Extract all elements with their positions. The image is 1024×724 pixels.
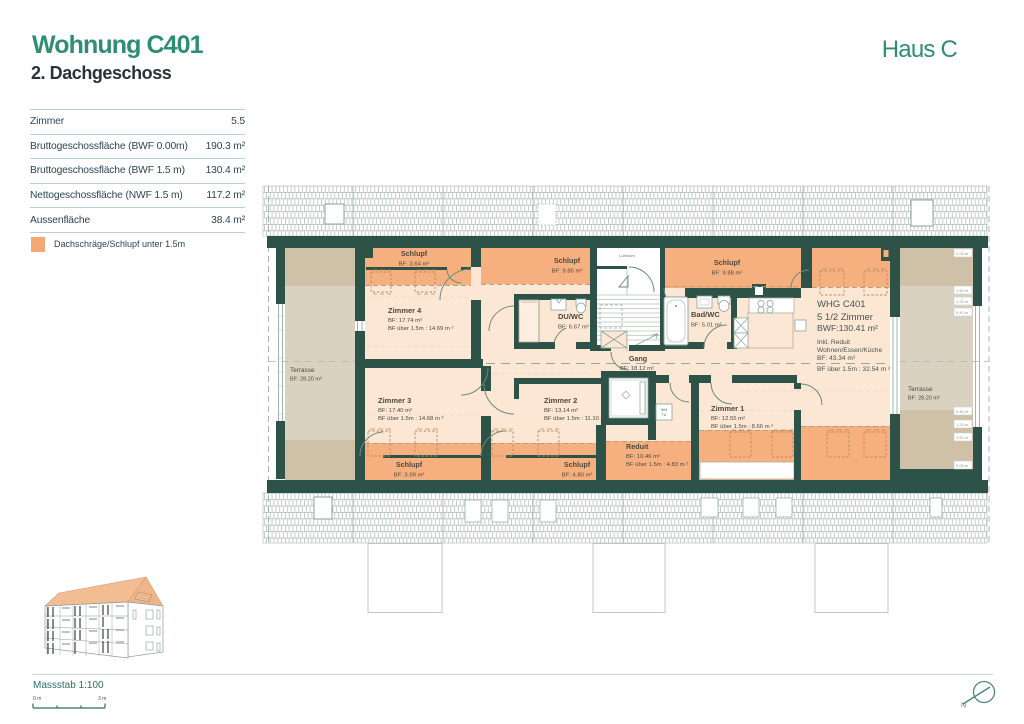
svg-text:BF über 1.5m : 4.83 m ²: BF über 1.5m : 4.83 m ² [626, 462, 688, 468]
svg-text:BF über 1.5m : 14.68 m ²: BF über 1.5m : 14.68 m ² [378, 416, 444, 422]
svg-text:BF: 6.67 m²: BF: 6.67 m² [558, 325, 589, 331]
svg-text:Zimmer 1: Zimmer 1 [711, 404, 744, 413]
svg-text:BF: 12.55 m²: BF: 12.55 m² [711, 416, 745, 422]
svg-text:1.20 m: 1.20 m [956, 422, 969, 427]
svg-text:BF über 1.5m : 32.54 m ²: BF über 1.5m : 32.54 m ² [817, 366, 891, 373]
svg-text:Reduit: Reduit [626, 442, 649, 451]
svg-text:Inkl. Reduit: Inkl. Reduit [817, 339, 850, 346]
svg-text:WM: WM [661, 408, 667, 412]
svg-text:Luftraum: Luftraum [619, 253, 635, 258]
svg-text:BF über 1.5m : 14.69 m ²: BF über 1.5m : 14.69 m ² [388, 326, 454, 332]
svg-text:Zimmer 2: Zimmer 2 [544, 396, 577, 405]
svg-text:2.00 m: 2.00 m [956, 251, 969, 256]
svg-text:Bad/WC: Bad/WC [691, 310, 720, 319]
svg-text:1.50 m: 1.50 m [956, 288, 969, 293]
svg-text:Schlupf: Schlupf [714, 258, 741, 267]
svg-text:5 1/2 Zimmer: 5 1/2 Zimmer [817, 312, 873, 323]
svg-text:N: N [961, 703, 966, 710]
svg-text:BF: 9.85 m²: BF: 9.85 m² [552, 269, 583, 275]
svg-text:BF: 28.20 m²: BF: 28.20 m² [290, 377, 322, 383]
svg-text:BF: 3.64 m²: BF: 3.64 m² [399, 262, 430, 268]
svg-text:BF: 10.46 m²: BF: 10.46 m² [626, 454, 660, 460]
svg-text:0.40 m: 0.40 m [956, 409, 969, 414]
svg-text:Terrasse: Terrasse [908, 386, 933, 393]
svg-text:Schlupf: Schlupf [554, 256, 581, 265]
svg-text:BF: 17.40 m²: BF: 17.40 m² [378, 408, 412, 414]
svg-text:Schlupf: Schlupf [564, 460, 591, 469]
svg-text:BF über 1.5m : 8.66 m ²: BF über 1.5m : 8.66 m ² [711, 424, 773, 430]
svg-text:Schlupf: Schlupf [396, 460, 423, 469]
svg-text:BF: 4.80 m²: BF: 4.80 m² [562, 473, 593, 479]
svg-text:BF: 17.74 m²: BF: 17.74 m² [388, 318, 422, 324]
svg-text:BF über 1.5m : 11.10 m ²: BF über 1.5m : 11.10 m ² [544, 416, 609, 422]
svg-text:Schlupf: Schlupf [401, 249, 428, 258]
svg-text:Wohnen/Essen/Küche: Wohnen/Essen/Küche [817, 347, 882, 354]
svg-text:BF: 3.99 m²: BF: 3.99 m² [394, 473, 425, 479]
svg-text:BF: 13.14 m²: BF: 13.14 m² [544, 408, 578, 414]
svg-text:BF: 5.01 m²: BF: 5.01 m² [691, 323, 722, 329]
svg-text:BF: 9.88 m²: BF: 9.88 m² [712, 271, 743, 277]
svg-text:BF: 28.20 m²: BF: 28.20 m² [908, 396, 940, 402]
svg-text:Zimmer 4: Zimmer 4 [388, 306, 422, 315]
svg-text:Gang: Gang [629, 354, 647, 363]
svg-text:TU: TU [662, 413, 667, 417]
svg-text:1.50 m: 1.50 m [956, 435, 969, 440]
svg-text:BWF:130.41 m²: BWF:130.41 m² [817, 323, 878, 333]
svg-text:WHG C401: WHG C401 [817, 299, 866, 310]
svg-text:DU/WC: DU/WC [558, 312, 584, 321]
svg-text:0 m: 0 m [33, 696, 41, 702]
svg-text:Terrasse: Terrasse [290, 367, 315, 374]
svg-text:BF: 18.12 m²: BF: 18.12 m² [620, 366, 654, 372]
svg-text:Zimmer 3: Zimmer 3 [378, 396, 411, 405]
svg-text:BF: 43.34 m²: BF: 43.34 m² [817, 355, 856, 362]
svg-text:1.20 m: 1.20 m [956, 299, 969, 304]
svg-text:0.40 m: 0.40 m [956, 310, 969, 315]
svg-text:0.00 m: 0.00 m [956, 463, 969, 468]
svg-text:3 m: 3 m [98, 696, 106, 702]
